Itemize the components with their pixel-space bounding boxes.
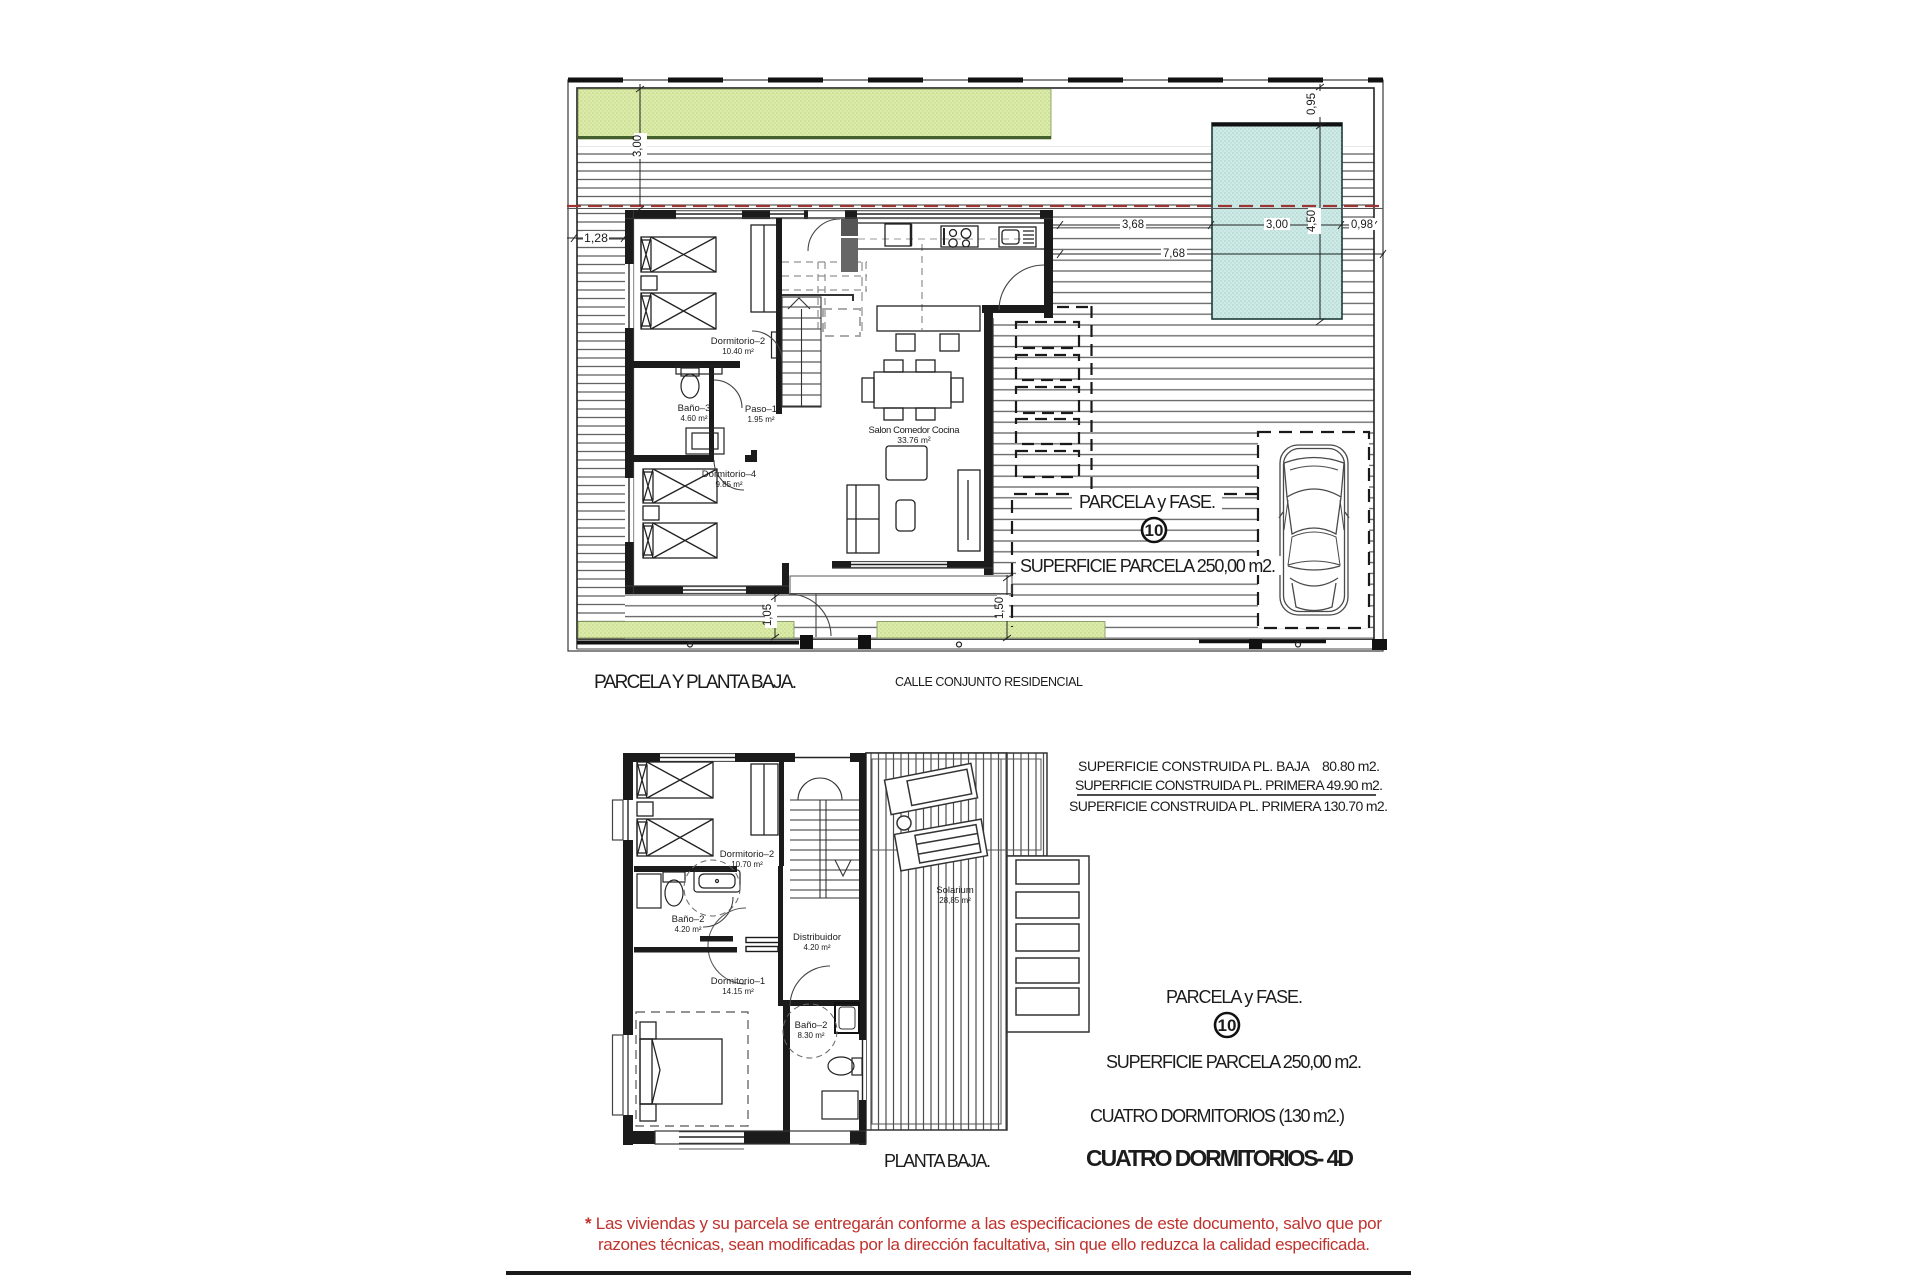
svg-text:10: 10: [1218, 1016, 1237, 1035]
svg-text:CALLE CONJUNTO RESIDENCIAL: CALLE CONJUNTO RESIDENCIAL: [895, 675, 1083, 689]
svg-text:14.15 m²: 14.15 m²: [722, 987, 754, 996]
svg-text:3,68: 3,68: [1122, 217, 1144, 231]
svg-text:7,68: 7,68: [1163, 246, 1185, 260]
svg-text:3,00: 3,00: [630, 135, 644, 157]
svg-text:PARCELA Y PLANTA BAJA.: PARCELA Y PLANTA BAJA.: [594, 672, 797, 693]
svg-text:4,50: 4,50: [1304, 210, 1318, 232]
svg-text:Dormitorio–1: Dormitorio–1: [711, 976, 765, 987]
svg-text:1,05: 1,05: [760, 604, 774, 626]
svg-text:SUPERFICIE PARCELA 250,00 m2.: SUPERFICIE PARCELA 250,00 m2.: [1020, 556, 1276, 576]
svg-text:10.40 m²: 10.40 m²: [722, 347, 754, 356]
svg-text:Distribuidor: Distribuidor: [793, 932, 841, 943]
svg-text:SUPERFICIE CONSTRUIDA PL. PRIM: SUPERFICIE CONSTRUIDA PL. PRIMERA 130.70…: [1069, 798, 1388, 814]
svg-text:28,85 m²: 28,85 m²: [939, 896, 971, 905]
svg-text:10: 10: [1145, 521, 1164, 540]
svg-text:33.76 m²: 33.76 m²: [897, 435, 931, 445]
svg-text:CUATRO DORMITORIOS (130 m2.): CUATRO DORMITORIOS (130 m2.): [1090, 1106, 1345, 1126]
svg-text:0,95: 0,95: [1304, 93, 1318, 115]
svg-text:SUPERFICIE CONSTRUIDA PL. BAJA: SUPERFICIE CONSTRUIDA PL. BAJA: [1078, 758, 1311, 774]
svg-text:Solarium: Solarium: [936, 885, 974, 896]
svg-text:Dormitorio–4: Dormitorio–4: [702, 469, 756, 480]
svg-text:Baño–2: Baño–2: [672, 914, 705, 925]
svg-text:Dormitorio–2: Dormitorio–2: [720, 849, 774, 860]
svg-text:3,00: 3,00: [1266, 217, 1288, 231]
svg-text:PARCELA y FASE.: PARCELA y FASE.: [1166, 987, 1303, 1007]
svg-text:PARCELA y FASE.: PARCELA y FASE.: [1079, 492, 1216, 512]
svg-text:1,28: 1,28: [584, 231, 608, 245]
svg-text:SUPERFICIE CONSTRUIDA PL. PRIM: SUPERFICIE CONSTRUIDA PL. PRIMERA 49.90 …: [1075, 777, 1383, 793]
svg-text:Dormitorio–2: Dormitorio–2: [711, 336, 765, 347]
svg-text:* Las viviendas y su parcela s: * Las viviendas y su parcela se entregar…: [585, 1214, 1382, 1233]
svg-text:Paso–1: Paso–1: [745, 404, 777, 415]
svg-text:80.80 m2.: 80.80 m2.: [1322, 758, 1380, 774]
svg-text:0,98: 0,98: [1351, 217, 1373, 231]
svg-text:1,50: 1,50: [992, 597, 1006, 619]
svg-text:4.20 m²: 4.20 m²: [674, 925, 701, 934]
svg-text:razones técnicas, sean modific: razones técnicas, sean modificadas por l…: [598, 1235, 1370, 1254]
svg-text:1.95 m²: 1.95 m²: [747, 415, 774, 424]
svg-text:SUPERFICIE PARCELA 250,00 m2.: SUPERFICIE PARCELA 250,00 m2.: [1106, 1052, 1362, 1072]
svg-text:CUATRO DORMITORIOS- 4D: CUATRO DORMITORIOS- 4D: [1086, 1145, 1354, 1171]
svg-text:10.70 m²: 10.70 m²: [731, 860, 763, 869]
svg-text:Baño–3: Baño–3: [678, 403, 711, 414]
svg-text:Baño–2: Baño–2: [795, 1020, 828, 1031]
svg-text:9.85 m²: 9.85 m²: [715, 480, 742, 489]
svg-text:8.30 m²: 8.30 m²: [797, 1031, 824, 1040]
svg-text:4.60 m²: 4.60 m²: [680, 414, 707, 423]
svg-text:PLANTA BAJA.: PLANTA BAJA.: [884, 1151, 991, 1171]
svg-text:4.20 m²: 4.20 m²: [803, 943, 830, 952]
